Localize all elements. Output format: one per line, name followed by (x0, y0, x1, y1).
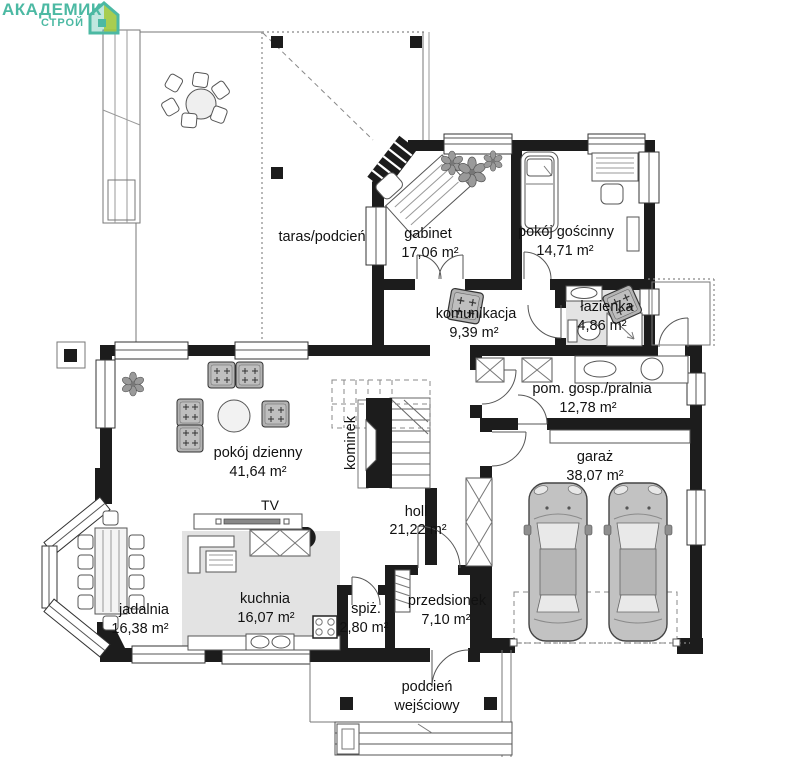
logo-house-icon (88, 1, 120, 35)
terrace-table-set (161, 72, 231, 128)
desk-chair (601, 184, 623, 204)
window-bathroom-east (640, 289, 659, 315)
hob (313, 616, 337, 638)
step (335, 744, 512, 755)
step (335, 733, 512, 744)
logo: АКАДЕМИК СТРОЙ (2, 1, 122, 35)
tall-cabinets (250, 530, 310, 556)
window-living-north-2 (235, 342, 308, 359)
label-dzienny: pokój dzienny (214, 445, 303, 461)
logo-line1: АКАДЕМИК (2, 1, 84, 18)
door-garage-pralnia (518, 395, 547, 424)
window-living-west (96, 360, 115, 428)
area-kuchnia: 16,07 m² (237, 610, 294, 626)
label-pralnia: pom. gosp./pralnia (532, 381, 652, 397)
area-lazienka: 4,86 m² (577, 318, 626, 334)
floor-plan-drawing: taras/podcień gabinet 17,06 m² pokój goś… (0, 0, 800, 758)
window-gabinet-north (444, 134, 512, 154)
area-dzienny: 41,64 m² (229, 464, 286, 480)
fireplace (358, 398, 392, 488)
label-komunikacja: komunikacja (436, 306, 518, 322)
laundry-sink (584, 361, 616, 377)
label-lazienka: łazienka (580, 299, 634, 315)
door-garage-inner (492, 432, 526, 466)
label-taras: taras/podcień (278, 229, 365, 245)
terrace-column (271, 167, 283, 179)
area-komunikacja: 9,39 m² (449, 325, 498, 341)
terrace-column (271, 36, 283, 48)
bay-window-middle (42, 546, 57, 608)
window-pralnia-east (687, 373, 705, 405)
tv-sideboard (194, 514, 302, 529)
area-goscinny: 14,71 m² (536, 243, 593, 259)
label-kuchnia: kuchnia (240, 591, 291, 607)
porch-column (340, 697, 353, 710)
area-przedsionek: 7,10 m² (421, 612, 470, 628)
nightstand (627, 217, 639, 251)
logo-line2: СТРОЙ (2, 18, 84, 29)
car-left (524, 483, 592, 641)
washing-machine (641, 358, 663, 380)
kitchen-sink (246, 634, 294, 650)
logo-text: АКАДЕМИК СТРОЙ (2, 1, 84, 29)
area-spiz: 2,80 m² (339, 620, 388, 636)
terrace-column (410, 36, 422, 48)
label-przedsionek: przedsionek (408, 593, 487, 609)
bed (521, 152, 558, 232)
laundry-fixtures (575, 356, 688, 383)
desk (592, 153, 638, 204)
garage-shelf (550, 430, 690, 443)
window-gabinet-west (366, 207, 386, 265)
label-gabinet: gabinet (404, 226, 452, 242)
area-pralnia: 12,78 m² (559, 400, 616, 416)
area-garaz: 38,07 m² (566, 468, 623, 484)
outside-column (64, 349, 77, 362)
label-goscinny: pokój gościnny (518, 224, 615, 240)
window-guest-east (639, 152, 659, 203)
shaft-hall (466, 478, 492, 566)
label-podcien-1: podcień (402, 679, 453, 695)
label-spiz: spiż. (351, 601, 381, 617)
window-garage-east (687, 490, 705, 545)
area-gabinet: 17,06 m² (401, 245, 458, 261)
label-podcien-2: wejściowy (393, 698, 460, 714)
label-garaz: garaż (577, 449, 613, 465)
window-living-north-1 (115, 342, 188, 359)
porch-column (484, 697, 497, 710)
door-bathroom (528, 305, 561, 338)
door-side-entrance (659, 318, 688, 347)
label-kominek: kominek (343, 415, 359, 470)
window-guest-north (588, 134, 645, 154)
area-jadalnia: 16,38 m² (111, 621, 168, 637)
floor-plan-page: АКАДЕМИК СТРОЙ (0, 0, 800, 758)
area-holl: 21,22 m² (389, 522, 446, 538)
label-tv: TV (261, 497, 280, 513)
coffee-table (218, 400, 250, 432)
label-jadalnia: jadalnia (118, 602, 170, 618)
label-holl: holl (405, 504, 428, 520)
car-right (604, 483, 672, 641)
